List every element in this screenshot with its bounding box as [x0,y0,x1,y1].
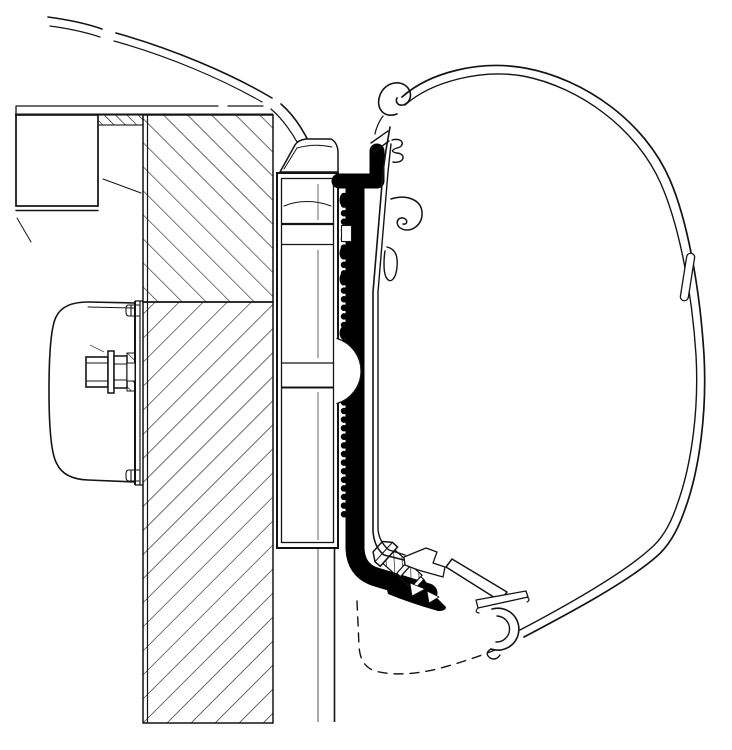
roof-frame-section [16,115,98,211]
wall-top-infill-strip [98,115,143,125]
interior-ceiling-line [16,106,263,114]
outer-wall-panel-lines [318,548,335,722]
clamp-hex-bolt-assembly [86,351,135,393]
diagram-canvas [0,0,732,750]
adapter-mounting-bracket [277,173,338,548]
technical-diagram [0,0,732,750]
hidden-contour-dashed [357,601,495,674]
cassette-shell-seam-clip [680,253,695,302]
awning-cassette-shell [402,66,705,637]
wall-top-cap-profile [280,139,338,172]
interior-clamp-plate-cover [49,301,143,485]
